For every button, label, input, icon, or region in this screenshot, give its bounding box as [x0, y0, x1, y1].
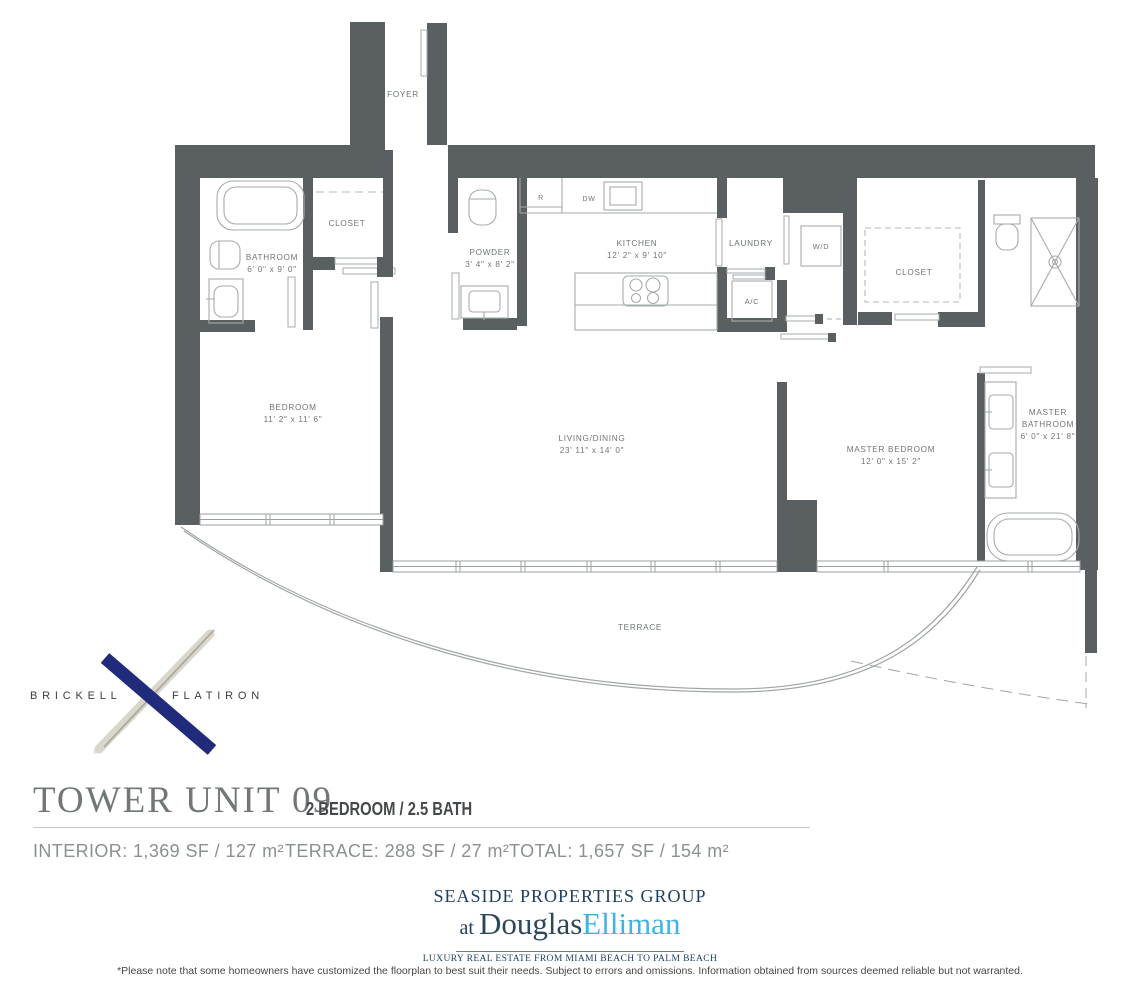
floorplan-page: FOYER BATHROOM 6' 0" x 9' 0" CLOSET POWD… — [0, 0, 1140, 986]
laundry-door — [733, 275, 765, 279]
bedroom-door — [371, 282, 378, 328]
master-vanity — [985, 382, 1016, 498]
room-dims-living-dining: 23' 11" x 14' 0" — [560, 446, 625, 455]
appliance-label-dishwasher: DW — [582, 196, 595, 203]
master-sink — [989, 395, 1013, 429]
master-bathtub — [987, 513, 1079, 561]
master-bath-door — [980, 367, 1031, 373]
floor-plan: FOYER BATHROOM 6' 0" x 9' 0" CLOSET POWD… — [0, 0, 1140, 762]
room-label-bedroom: BEDROOM — [269, 403, 316, 412]
brickell-flatiron-logo: BRICKELL FLATIRON — [30, 630, 264, 753]
door-jamb — [815, 314, 823, 324]
hall-door — [781, 334, 829, 339]
hall-door — [786, 316, 816, 321]
stat-interior: INTERIOR: 1,369 SF / 127 m² — [33, 841, 284, 862]
laundry-door — [727, 269, 765, 273]
room-label-living-dining: LIVING/DINING — [559, 434, 626, 443]
room-dims-master-bath: 6' 0" x 21' 8" — [1021, 432, 1076, 441]
doors — [288, 30, 1031, 373]
room-label-foyer: FOYER — [387, 90, 419, 99]
room-label-terrace: TERRACE — [618, 623, 662, 632]
room-dims-powder: 3' 4" x 8' 2" — [465, 260, 514, 269]
stat-total: TOTAL: 1,657 SF / 154 m² — [509, 841, 729, 862]
master-closet-shelves — [865, 228, 960, 302]
broker-logo: SEASIDE PROPERTIES GROUP at DouglasEllim… — [0, 886, 1140, 964]
room-label-master-bath-2: BATHROOM — [1022, 420, 1074, 429]
toilet — [469, 190, 496, 225]
room-label-laundry: LAUNDRY — [729, 239, 773, 248]
brand-text-brickell: BRICKELL — [30, 690, 122, 702]
disclaimer-text: *Please note that some homeowners have c… — [0, 965, 1140, 977]
appliance-label-ac: A/C — [745, 297, 760, 306]
room-dims-bedroom: 11' 2" x 11' 6" — [264, 415, 323, 424]
toilet — [210, 241, 240, 269]
room-label-kitchen: KITCHEN — [617, 239, 658, 248]
bathroom-door — [288, 277, 295, 327]
broker-tagline: LUXURY REAL ESTATE FROM MIAMI BEACH TO P… — [0, 954, 1140, 964]
broker-douglas: Douglas — [479, 906, 582, 941]
stat-terrace: TERRACE: 288 SF / 27 m² — [285, 841, 509, 862]
appliance-label-washer-dryer: W/D — [813, 242, 830, 251]
door-jamb — [828, 333, 836, 342]
room-label-master-bedroom: MASTER BEDROOM — [847, 445, 936, 454]
fixtures — [206, 178, 1079, 561]
room-label-master-closet: CLOSET — [896, 268, 933, 277]
room-label-closet: CLOSET — [329, 219, 366, 228]
room-dims-bathroom: 6' 0" x 9' 0" — [247, 265, 296, 274]
room-dims-master-bedroom: 12' 0" x 15' 2" — [861, 457, 921, 466]
terrace-edge — [181, 527, 1089, 708]
room-label-bathroom: BATHROOM — [246, 253, 298, 262]
room-dims-kitchen: 12' 2" x 9' 10" — [607, 251, 667, 260]
powder-door — [452, 273, 459, 319]
brand-text-flatiron: FLATIRON — [172, 690, 264, 702]
room-label-master-bath-1: MASTER — [1029, 408, 1067, 417]
kitchen-door — [716, 219, 722, 266]
broker-divider — [456, 951, 684, 952]
wd-door — [784, 216, 789, 264]
toilet — [994, 215, 1020, 224]
broker-elliman: Elliman — [582, 906, 680, 941]
brand-x-icon — [105, 658, 212, 750]
walls — [175, 22, 1098, 653]
cooktop — [623, 276, 668, 306]
master-closet-door — [895, 314, 939, 320]
room-label-powder: POWDER — [469, 248, 510, 257]
page-title: TOWER UNIT 09 — [33, 779, 333, 822]
master-sink — [989, 453, 1013, 487]
door-jamb — [377, 257, 393, 277]
broker-group-name: SEASIDE PROPERTIES GROUP — [0, 886, 1140, 906]
broker-at: at — [460, 917, 479, 939]
divider-line — [33, 827, 810, 828]
unit-config: 2 BEDROOM / 2.5 BATH — [306, 799, 472, 820]
kitchen-island — [575, 273, 717, 330]
appliance-label-refrigerator: R — [538, 195, 544, 202]
entry-door — [421, 30, 427, 76]
windows — [200, 514, 1080, 572]
